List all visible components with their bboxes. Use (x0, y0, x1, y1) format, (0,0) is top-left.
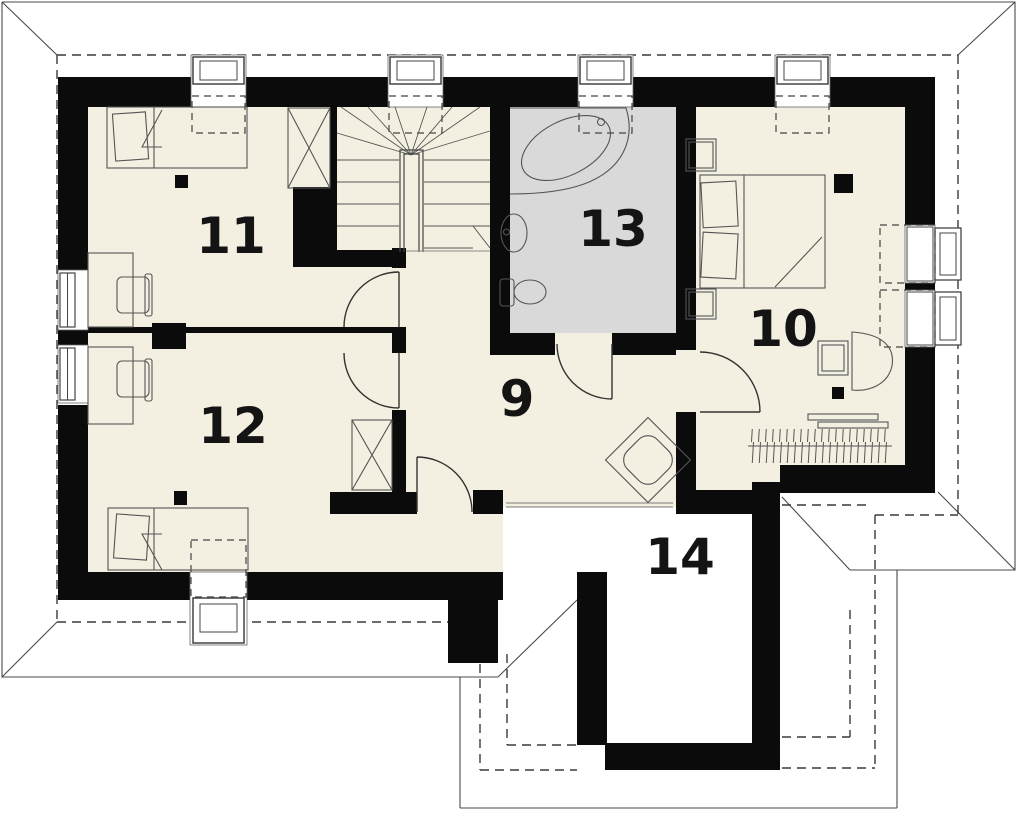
room-label-9: 9 (500, 370, 535, 428)
window-icon (58, 270, 88, 330)
room-label-10: 10 (748, 300, 818, 358)
chimney-column-icon (174, 491, 187, 505)
floor-plan-canvas: 9 10 11 12 13 14 (0, 0, 1033, 813)
room-label-13: 13 (578, 200, 648, 258)
floor-plan-drawing: 9 10 11 12 13 14 (0, 0, 1033, 813)
chimney-column-icon (834, 174, 853, 193)
room-label-12: 12 (198, 397, 268, 455)
chimney-column-icon (832, 387, 844, 399)
room-label-11: 11 (196, 207, 266, 265)
room-label-14: 14 (645, 528, 715, 586)
radiator-icon (748, 429, 892, 463)
window-icon (58, 345, 88, 403)
chimney-column-icon (175, 175, 188, 188)
